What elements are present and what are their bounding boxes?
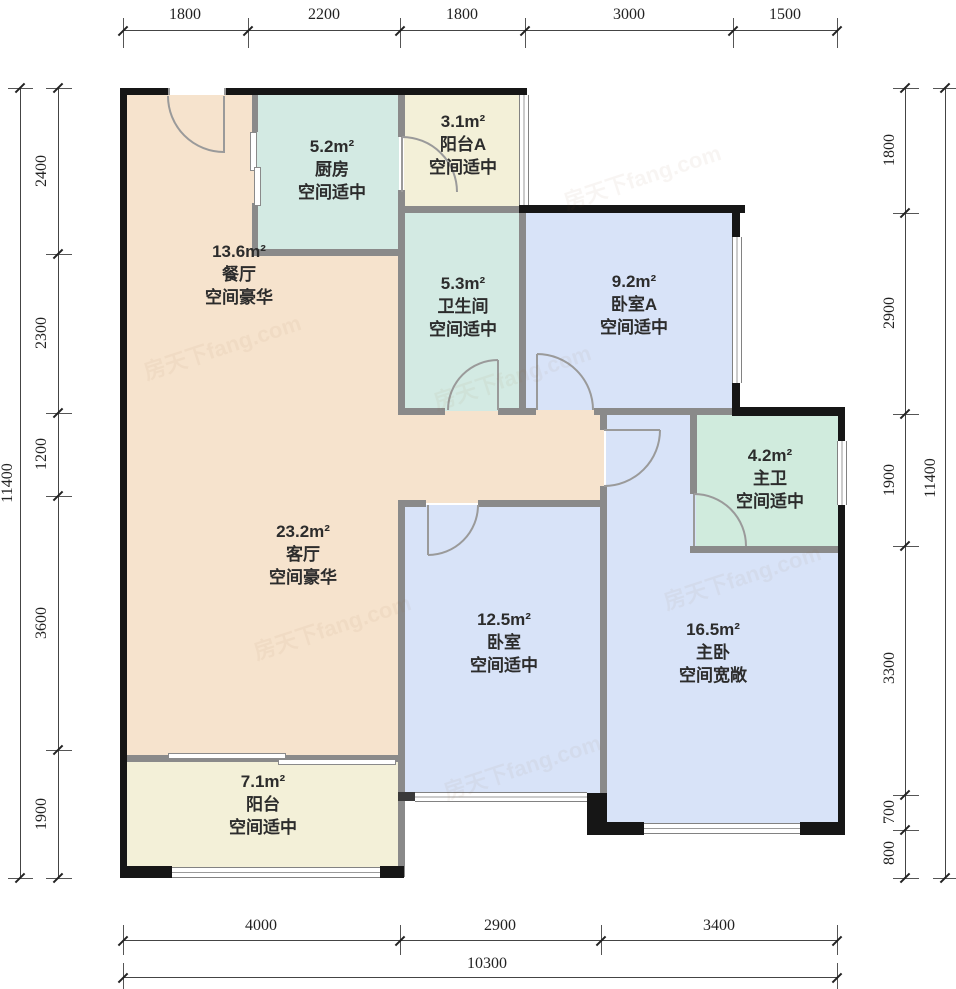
dim-right-4: 3300 (881, 652, 899, 684)
bathroom-area: 5.3m² (429, 272, 497, 295)
dim-top-2: 2200 (308, 6, 340, 24)
bedroom-a-name: 卧室A (600, 293, 668, 316)
dim-left-1: 2400 (33, 155, 51, 187)
bedroom-name: 卧室 (470, 631, 538, 654)
bedroom-area: 12.5m² (470, 608, 538, 631)
dim-right-2: 2900 (881, 297, 899, 329)
bedroom-door-arc (428, 505, 478, 555)
dim-left-2: 2300 (33, 317, 51, 349)
kitchen-spec: 空间适中 (298, 181, 366, 204)
dining-name: 餐厅 (205, 263, 273, 286)
master-bath-spec: 空间适中 (736, 490, 804, 513)
dim-left-5: 1900 (33, 798, 51, 830)
master-bedroom-area: 16.5m² (679, 618, 747, 641)
bathroom-label: 5.3m² 卫生间 空间适中 (429, 272, 497, 341)
master-bath-name: 主卫 (736, 467, 804, 490)
balcony-a-spec: 空间适中 (429, 156, 497, 179)
dim-top-4: 3000 (613, 6, 645, 24)
master-bedroom-spec: 空间宽敞 (679, 664, 747, 687)
kitchen-label: 5.2m² 厨房 空间适中 (298, 135, 366, 204)
master-bedroom-label: 16.5m² 主卧 空间宽敞 (679, 618, 747, 687)
ruler-right-line (905, 88, 906, 878)
bathroom-spec: 空间适中 (429, 318, 497, 341)
dining-spec: 空间豪华 (205, 286, 273, 309)
dim-left-3: 1200 (33, 438, 51, 470)
floor-plan: 13.6m² 餐厅 空间豪华 5.2m² 厨房 空间适中 3.1m² 阳台A 空… (0, 0, 956, 989)
bedroom-a-door-arc (537, 354, 593, 410)
ruler-left-total-line (20, 88, 21, 878)
living-spec: 空间豪华 (269, 566, 337, 589)
dim-right-5: 700 (881, 800, 899, 824)
ruler-right-total-line (945, 88, 946, 878)
bedroom-label: 12.5m² 卧室 空间适中 (470, 608, 538, 677)
dim-top-3: 1800 (446, 6, 478, 24)
master-bedroom-name: 主卧 (679, 641, 747, 664)
dining-room-label: 13.6m² 餐厅 空间豪华 (205, 240, 273, 309)
balcony-spec: 空间适中 (229, 816, 297, 839)
balcony-a-name: 阳台A (429, 133, 497, 156)
dim-right-6: 800 (881, 841, 899, 865)
bedroom-a-spec: 空间适中 (600, 316, 668, 339)
balcony-name: 阳台 (229, 793, 297, 816)
dim-bottom-1: 4000 (245, 917, 277, 935)
master-bath-area: 4.2m² (736, 444, 804, 467)
kitchen-name: 厨房 (298, 158, 366, 181)
dim-left-total: 11400 (0, 463, 17, 502)
balcony-label: 7.1m² 阳台 空间适中 (229, 770, 297, 839)
dim-left-4: 3600 (33, 607, 51, 639)
dim-top-5: 1500 (769, 6, 801, 24)
entry-door-arc (168, 96, 224, 152)
dim-top-1: 1800 (169, 6, 201, 24)
master-door-arc (604, 430, 660, 486)
balcony-a-area: 3.1m² (429, 110, 497, 133)
dim-right-1: 1800 (881, 134, 899, 166)
living-area: 23.2m² (269, 520, 337, 543)
dim-right-3: 1900 (881, 464, 899, 496)
dim-right-total: 11400 (922, 458, 940, 497)
master-bath-label: 4.2m² 主卫 空间适中 (736, 444, 804, 513)
dim-bottom-2: 2900 (484, 917, 516, 935)
balcony-a-label: 3.1m² 阳台A 空间适中 (429, 110, 497, 179)
bathroom-door-arc (448, 360, 498, 410)
ruler-bottom-total-line (123, 977, 837, 978)
bedroom-a-label: 9.2m² 卧室A 空间适中 (600, 270, 668, 339)
bedroom-a-area: 9.2m² (600, 270, 668, 293)
balcony-area: 7.1m² (229, 770, 297, 793)
bathroom-name: 卫生间 (429, 295, 497, 318)
ruler-left-line (58, 88, 59, 878)
living-room-label: 23.2m² 客厅 空间豪华 (269, 520, 337, 589)
kitchen-area: 5.2m² (298, 135, 366, 158)
ruler-bottom-line (123, 940, 837, 941)
living-name: 客厅 (269, 543, 337, 566)
dim-bottom-3: 3400 (703, 917, 735, 935)
dim-bottom-total: 10300 (467, 955, 507, 973)
bedroom-spec: 空间适中 (470, 654, 538, 677)
dining-area: 13.6m² (205, 240, 273, 263)
